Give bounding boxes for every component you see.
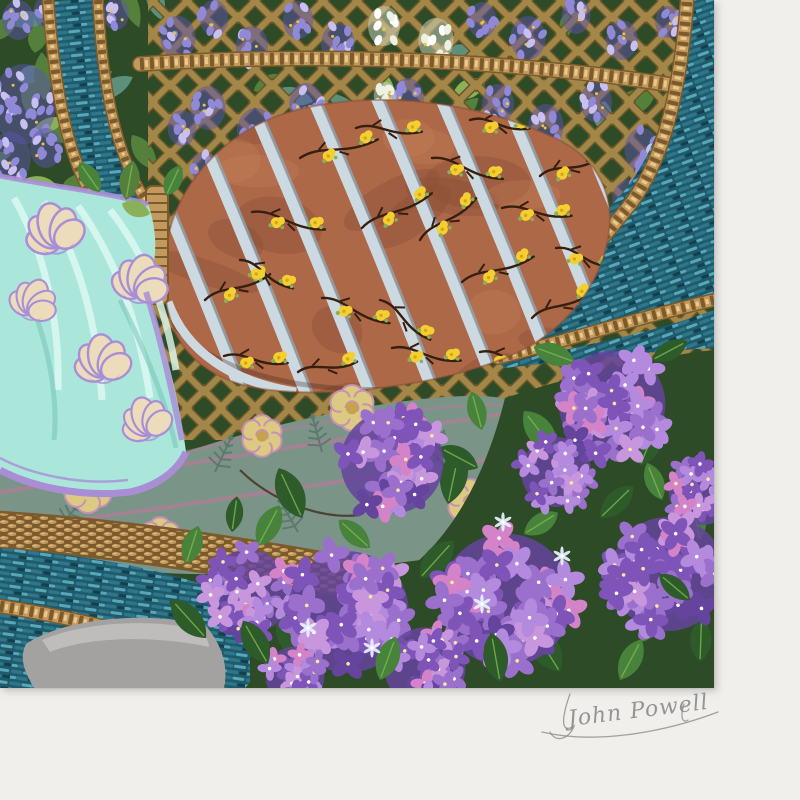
painting-canvas <box>0 0 714 688</box>
artwork-print <box>0 0 714 688</box>
signature-text: John Powell <box>563 690 710 733</box>
artist-signature: John Powell <box>534 682 734 746</box>
matte-board: John Powell <box>0 0 800 800</box>
